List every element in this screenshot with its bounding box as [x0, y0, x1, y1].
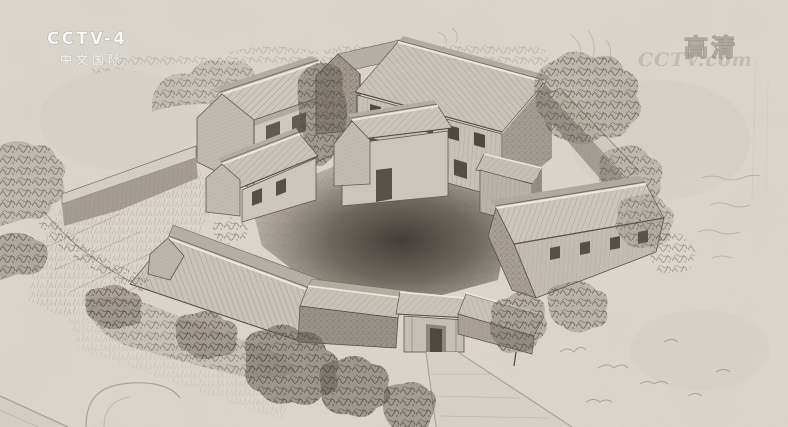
sketch-illustration: Pencil sketch — aerial view of a walled … — [0, 0, 788, 427]
channel-logo-text: CCTV-4 — [47, 29, 127, 48]
gatehouse: entrance gatehouse with doorway, south — [396, 292, 468, 352]
cottage-center: small cottage with door, centre of yard — [334, 100, 452, 206]
tv-frame: Pencil sketch — aerial view of a walled … — [0, 0, 788, 427]
hd-badge-text: 高清 — [684, 34, 738, 62]
channel-logo-subtitle: 中文国际 — [60, 52, 124, 67]
